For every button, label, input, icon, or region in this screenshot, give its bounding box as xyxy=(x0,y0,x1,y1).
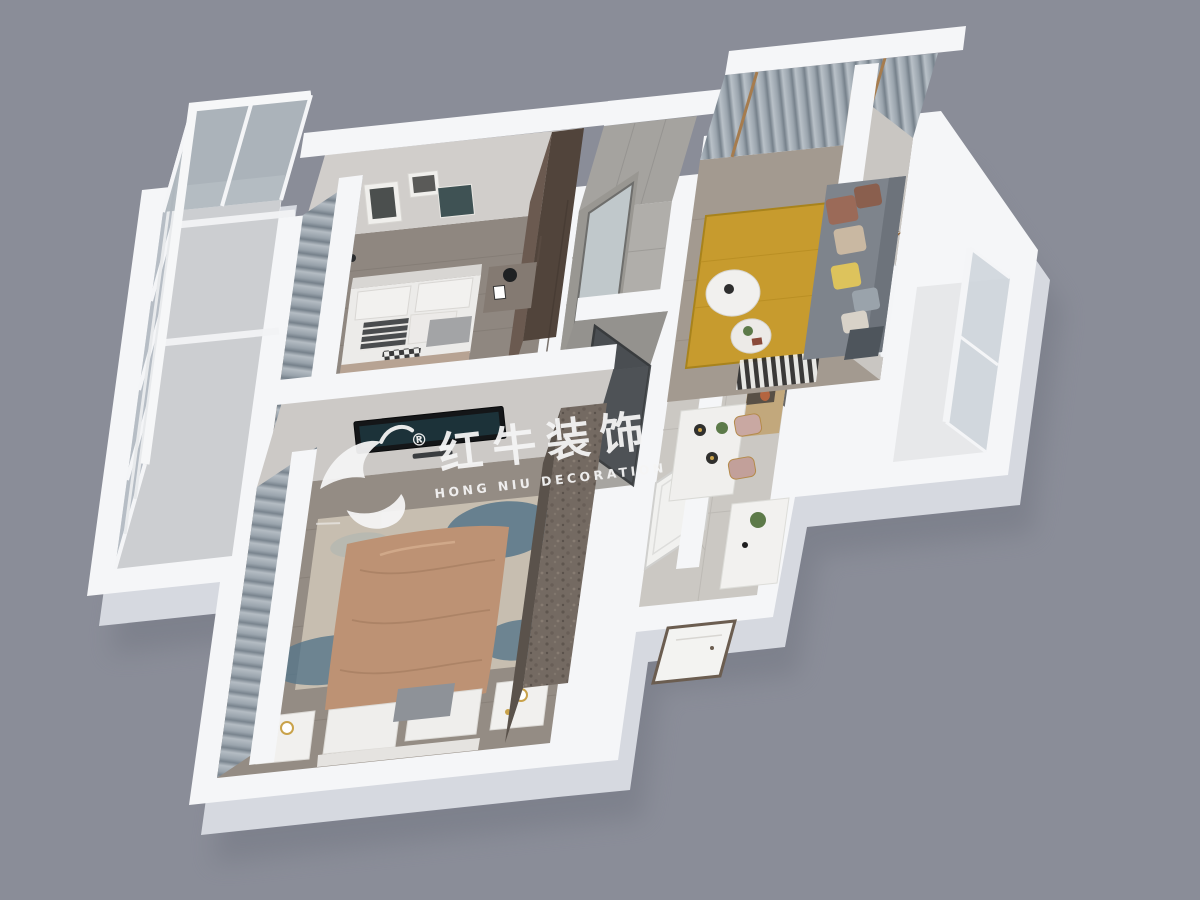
registered-mark: ® xyxy=(410,430,429,452)
black-cup xyxy=(742,542,748,548)
throw-blanket xyxy=(844,326,884,360)
rust-cushion xyxy=(825,195,859,226)
black-bowl xyxy=(724,284,734,294)
nightstand-right xyxy=(483,262,537,313)
desk-plant xyxy=(750,512,766,528)
pink-chair xyxy=(733,413,762,437)
striped-pillow xyxy=(360,317,409,351)
photo-frame xyxy=(493,285,505,299)
table-lamp xyxy=(503,268,517,282)
table-plant xyxy=(743,326,753,336)
gold-lamp xyxy=(281,722,293,734)
yellow-cushion xyxy=(830,262,862,290)
table-book xyxy=(752,337,763,345)
floorplan-3d-render: ® 红牛装饰 HONG NIU DECORATION xyxy=(0,0,1200,900)
gray-pillow xyxy=(393,683,455,722)
tan-cushion xyxy=(833,225,867,256)
entry-door-handle xyxy=(710,646,714,650)
bedroom2-duvet xyxy=(325,526,509,710)
pink-chair xyxy=(727,456,756,480)
dining-plant xyxy=(716,422,728,434)
